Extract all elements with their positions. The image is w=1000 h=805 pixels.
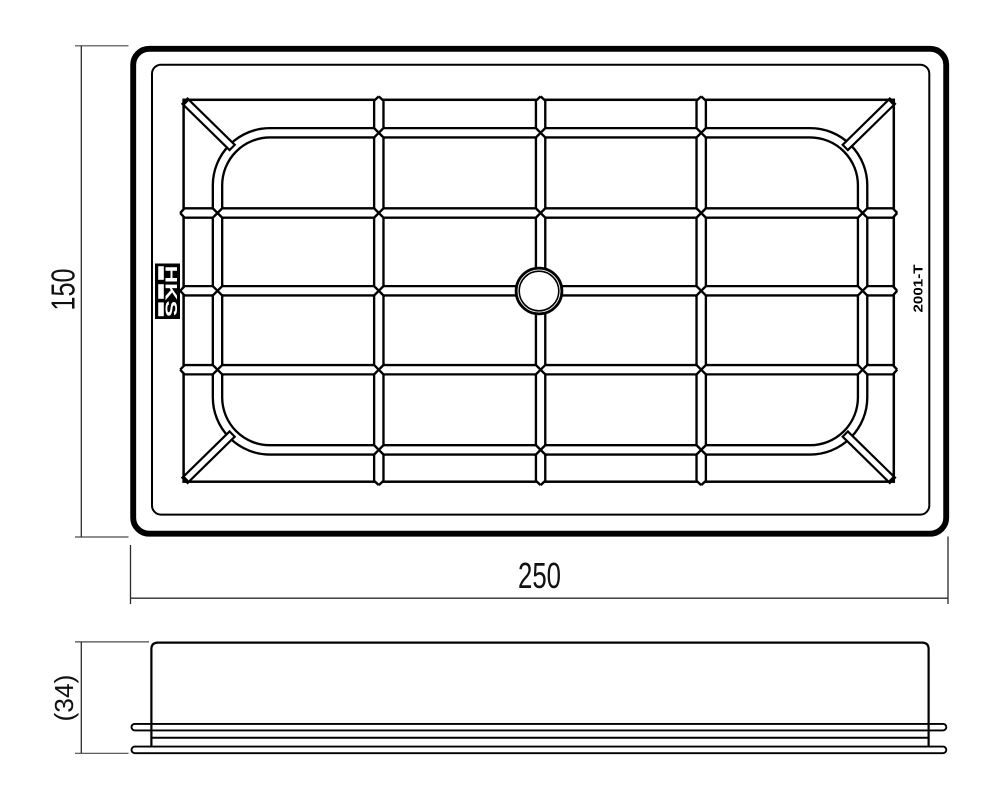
svg-text:250: 250: [518, 555, 561, 596]
svg-text:150: 150: [45, 269, 82, 311]
svg-text:2001-T: 2001-T: [912, 264, 926, 312]
svg-text:(34): (34): [49, 675, 79, 722]
svg-text:HKS: HKS: [161, 266, 179, 317]
